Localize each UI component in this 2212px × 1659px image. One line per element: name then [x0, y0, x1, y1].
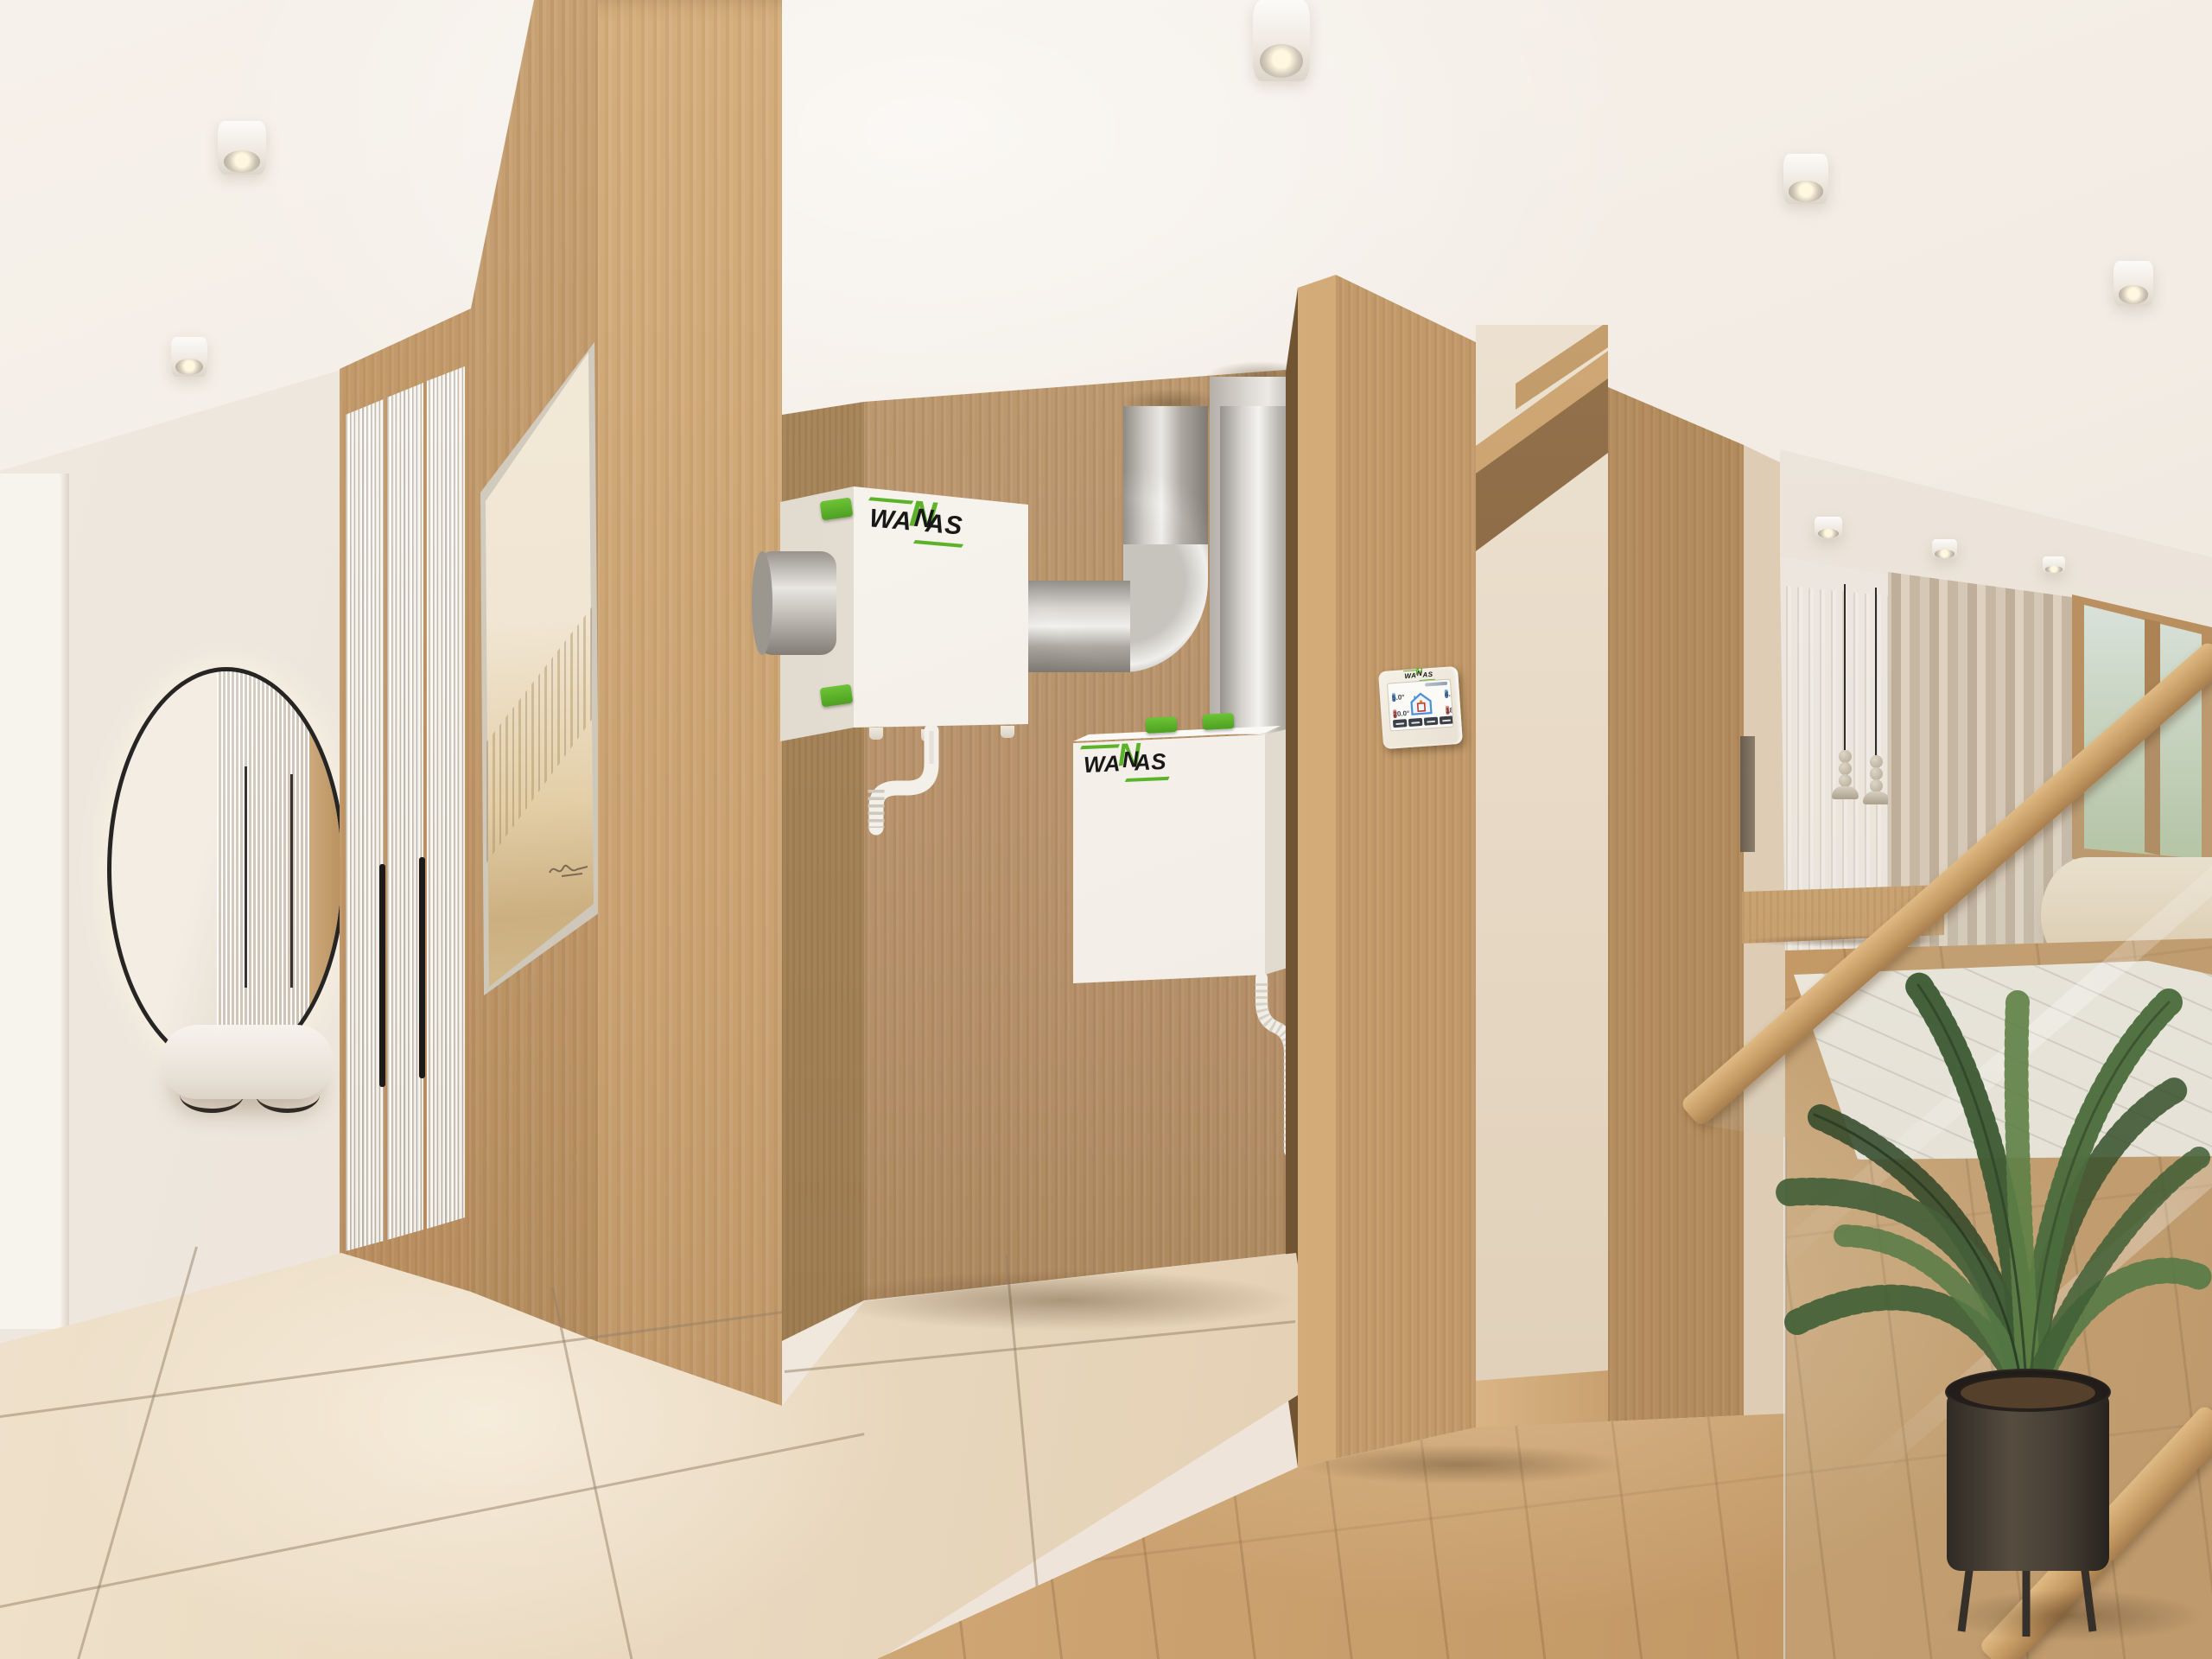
lamp-bead [1870, 767, 1883, 780]
plant-pot [1947, 1389, 2109, 1571]
temp-reading: 20.0° [1393, 709, 1397, 718]
panel-button[interactable] [1408, 718, 1423, 727]
panel-button[interactable] [1393, 719, 1408, 728]
panel-button[interactable] [1424, 717, 1439, 726]
panel-screen[interactable]: 5.0° 20.0° 4.0° 18.0° [1387, 678, 1454, 731]
condensate-siphon [876, 731, 931, 828]
temp-reading: 5.0° [1392, 693, 1396, 702]
lamp-bead [1839, 774, 1852, 787]
wanas-control-panel[interactable]: WA N N AS 5.0° 20.0° 4.0° [1378, 666, 1463, 749]
lamp-cord [1844, 584, 1846, 753]
temp-reading: 18.0° [1446, 706, 1450, 715]
lamp-shade [1863, 791, 1890, 804]
ceiling-light-icon [1932, 539, 1957, 559]
lamp-bead [1870, 779, 1883, 792]
pendant-lamp [1870, 588, 1883, 816]
temp-reading: 4.0° [1445, 690, 1449, 698]
wall-art-edge [1740, 736, 1755, 852]
house-diagram-icon [1408, 690, 1435, 717]
pouf-bench [161, 1025, 334, 1099]
lamp-bead [1870, 755, 1883, 768]
stairwell-opening [1476, 325, 1608, 1435]
ceiling-light-icon [1815, 517, 1842, 539]
pendant-lamp [1839, 584, 1852, 809]
panel-status-bar [1425, 682, 1447, 687]
floor-shadow [829, 1270, 1296, 1331]
ceiling-light-icon [2043, 556, 2065, 574]
stair-soffit [1476, 325, 1608, 1435]
potted-palm-plant [1763, 873, 2212, 1659]
lamp-bead [1839, 750, 1852, 763]
interior-render: WA N N AS WA N N AS [0, 0, 2212, 1659]
wanas-logo: WA N N AS [1404, 671, 1434, 680]
panel-button[interactable] [1440, 715, 1454, 724]
lamp-cord [1875, 588, 1877, 759]
lamp-shade [1832, 786, 1859, 799]
logo-text: AS [1422, 671, 1433, 678]
lamp-bead [1839, 762, 1852, 775]
